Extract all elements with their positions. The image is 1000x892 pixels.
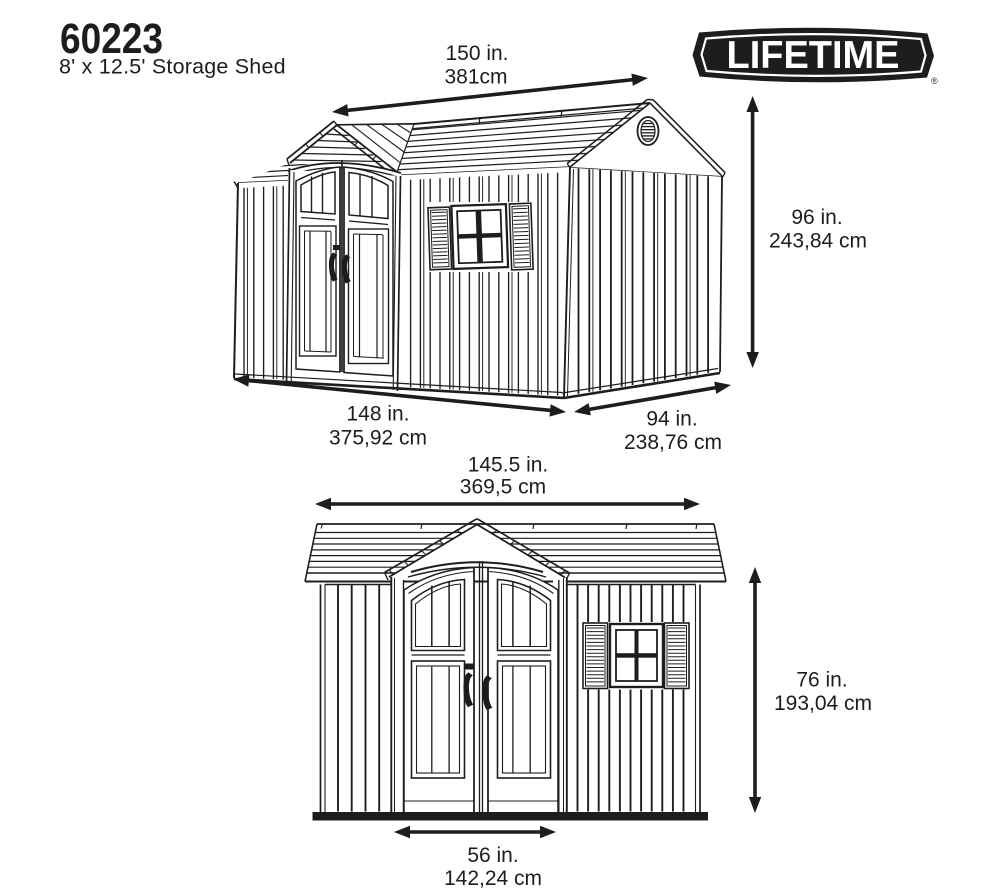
svg-text:238,76 cm: 238,76 cm (624, 431, 722, 454)
svg-text:375,92 cm: 375,92 cm (329, 427, 427, 450)
svg-text:76 in.: 76 in. (796, 669, 847, 692)
svg-text:®: ® (931, 76, 938, 86)
svg-text:142,24 cm: 142,24 cm (444, 867, 542, 890)
svg-text:193,04 cm: 193,04 cm (774, 692, 872, 715)
svg-text:145.5 in.: 145.5 in. (468, 454, 549, 477)
svg-text:LIFETIME: LIFETIME (727, 34, 900, 77)
svg-text:94 in.: 94 in. (646, 408, 697, 431)
svg-text:243,84 cm: 243,84 cm (769, 230, 867, 253)
svg-text:148 in.: 148 in. (346, 403, 409, 426)
svg-text:150 in.: 150 in. (445, 42, 508, 65)
svg-text:369,5 cm: 369,5 cm (460, 476, 546, 499)
svg-text:8' x 12.5' Storage Shed: 8' x 12.5' Storage Shed (59, 55, 286, 79)
svg-text:96 in.: 96 in. (791, 206, 842, 229)
svg-text:381cm: 381cm (444, 66, 507, 89)
svg-text:56 in.: 56 in. (467, 844, 518, 867)
